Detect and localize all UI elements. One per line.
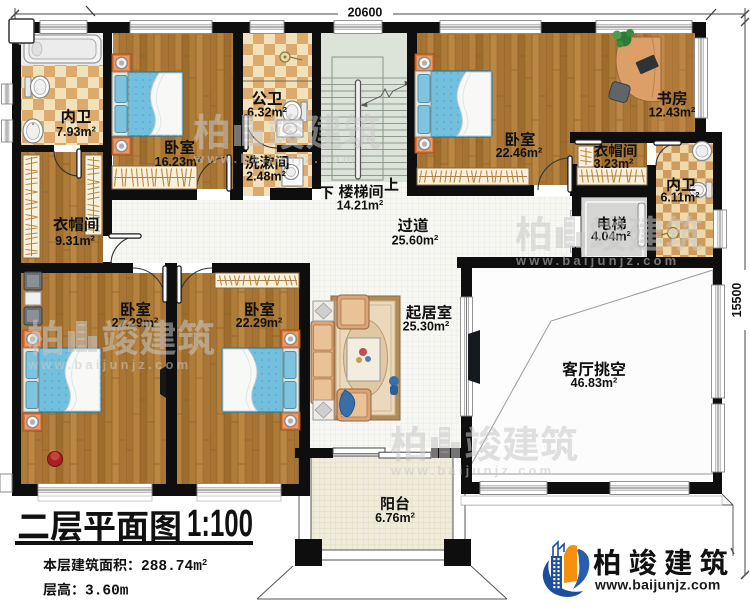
svg-text:9.31m2: 9.31m2 bbox=[55, 234, 95, 248]
svg-text:6.76m2: 6.76m2 bbox=[375, 511, 415, 525]
svg-text:3.23m2: 3.23m2 bbox=[594, 157, 634, 171]
svg-text:www.baijunjz.com: www.baijunjz.com bbox=[390, 463, 554, 478]
svg-text:2.48m2: 2.48m2 bbox=[246, 169, 286, 183]
svg-text:6.11m2: 6.11m2 bbox=[660, 190, 699, 204]
svg-text:288.74m2: 288.74m2 bbox=[141, 558, 207, 575]
svg-text:25.30m2: 25.30m2 bbox=[403, 319, 450, 333]
svg-text:25.60m2: 25.60m2 bbox=[392, 233, 439, 247]
svg-text:www.baijunjz.com: www.baijunjz.com bbox=[193, 151, 357, 166]
svg-text:46.83m2: 46.83m2 bbox=[571, 376, 618, 390]
svg-text:3.60m: 3.60m bbox=[85, 584, 129, 600]
svg-text:20600: 20600 bbox=[348, 6, 383, 20]
svg-text:22.29m2: 22.29m2 bbox=[236, 316, 283, 330]
svg-text:1:100: 1:100 bbox=[187, 503, 253, 545]
svg-text:14.21m2: 14.21m2 bbox=[337, 198, 384, 212]
svg-text:7.93m2: 7.93m2 bbox=[56, 125, 96, 139]
svg-text:www.baijunjz.com: www.baijunjz.com bbox=[27, 357, 191, 372]
svg-text:12.43m2: 12.43m2 bbox=[649, 105, 696, 119]
svg-text:15500: 15500 bbox=[730, 283, 744, 318]
svg-text:22.46m2: 22.46m2 bbox=[496, 146, 543, 160]
svg-text:www.baijunjz.com: www.baijunjz.com bbox=[594, 577, 721, 593]
svg-text:6.32m2: 6.32m2 bbox=[247, 105, 287, 119]
svg-text:www.baijunjz.com: www.baijunjz.com bbox=[515, 253, 679, 268]
